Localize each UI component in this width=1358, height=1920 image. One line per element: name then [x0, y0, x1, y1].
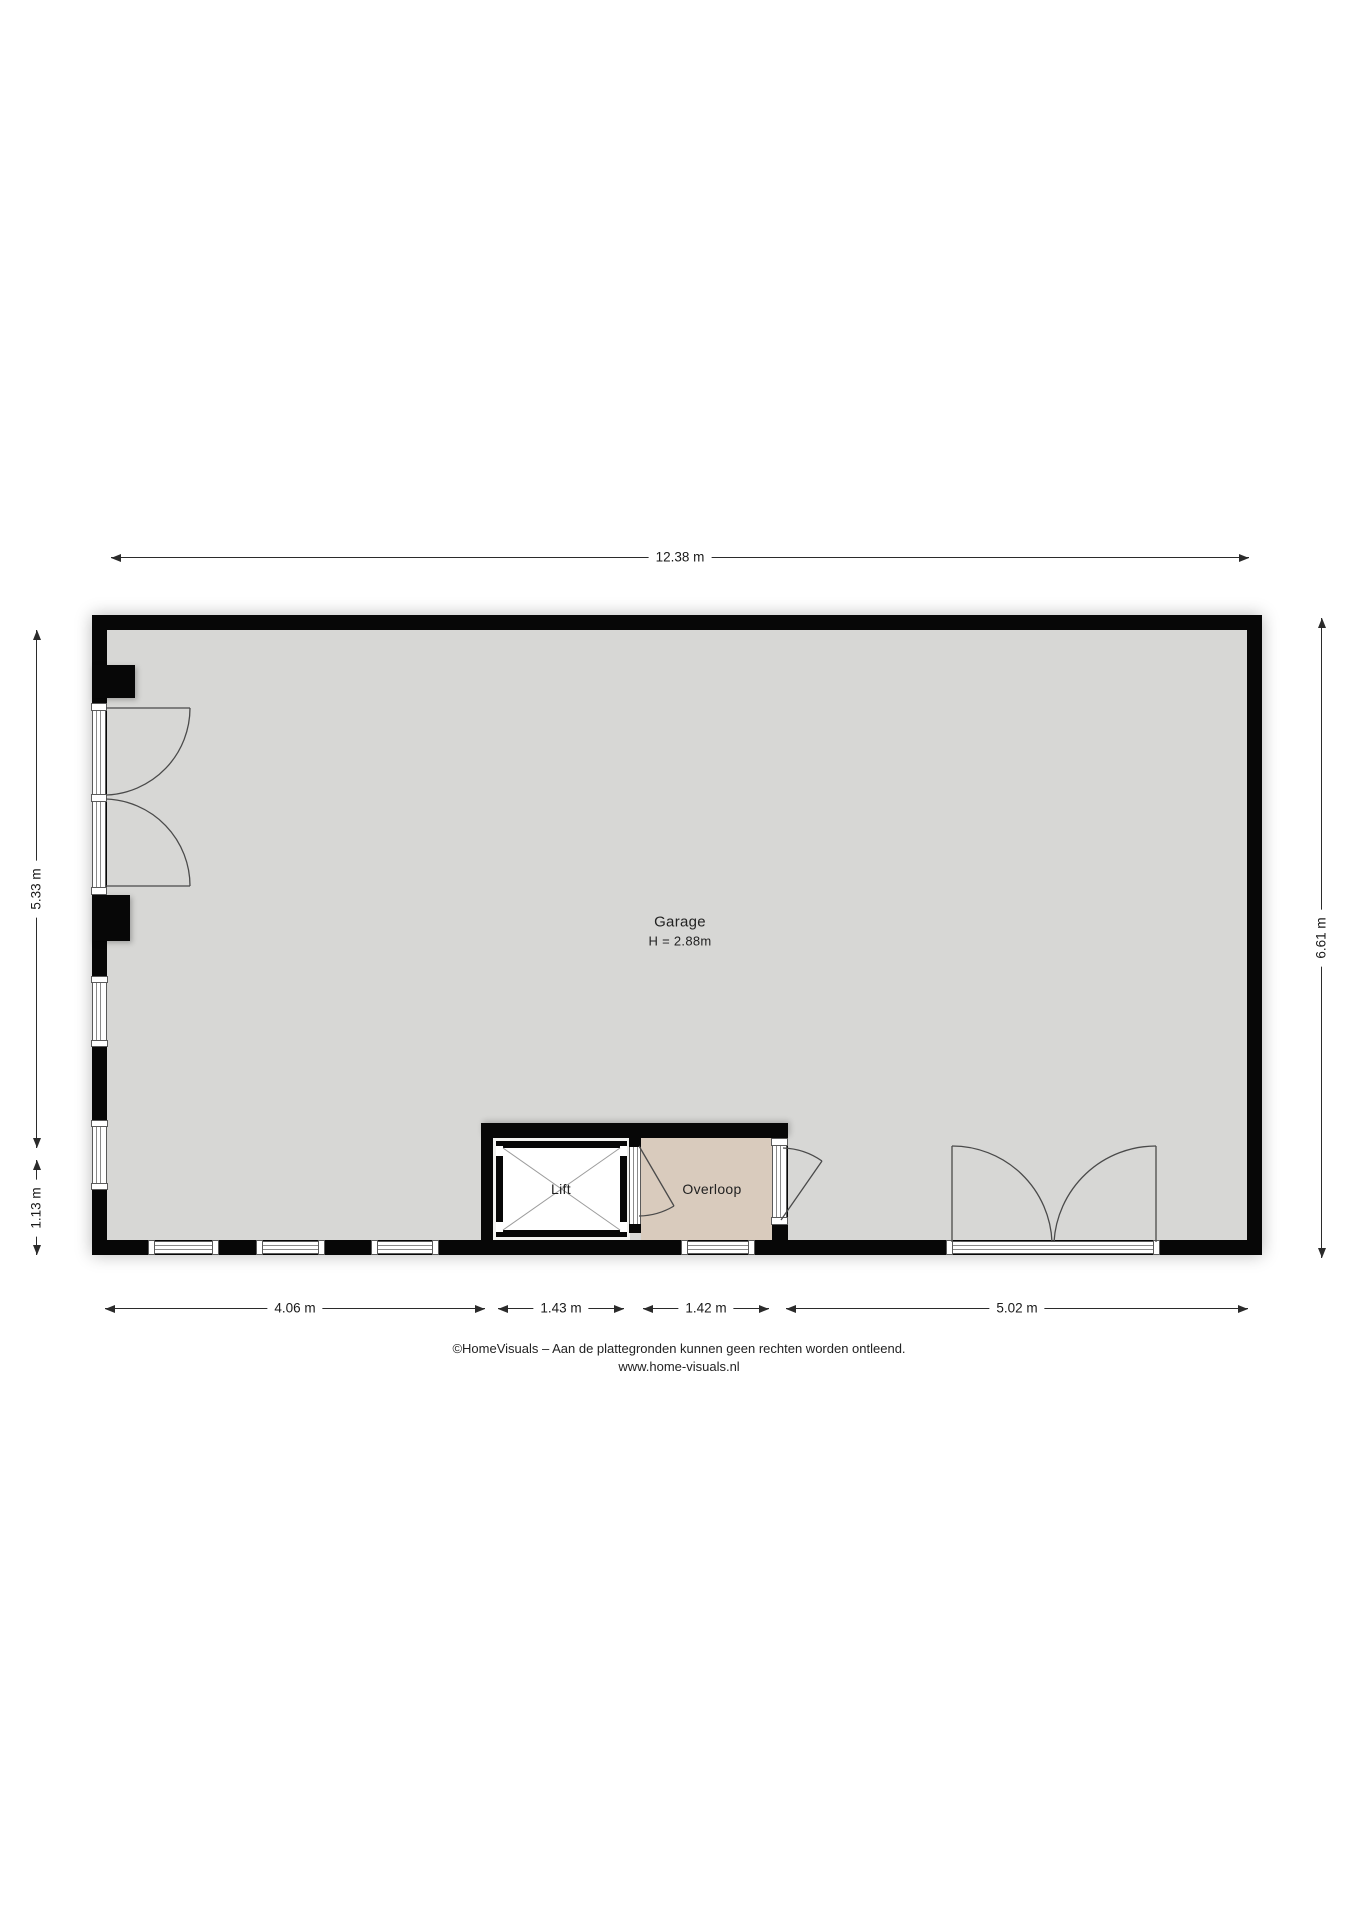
lift-door-cap [629, 1138, 641, 1147]
window-cap [318, 1240, 325, 1255]
arrow-right-icon [1238, 1305, 1248, 1313]
lift-frame-notch [496, 1146, 503, 1156]
dimension-label: 12.38 m [649, 550, 712, 565]
window-cap [681, 1240, 688, 1255]
overloop-door-frame [772, 1140, 787, 1223]
window-cap [91, 976, 108, 983]
arrow-left-icon [498, 1305, 508, 1313]
window [258, 1241, 323, 1254]
lift-door-frame [629, 1138, 641, 1233]
window-cap [371, 1240, 378, 1255]
pillar [92, 665, 135, 698]
dimension-top: 12.38 m [111, 551, 1249, 564]
dimension-label: 1.42 m [678, 1301, 733, 1316]
arrow-up-icon [33, 630, 41, 640]
lift-frame-notch [620, 1222, 627, 1232]
dimension-bottom-3: 1.42 m [643, 1302, 769, 1315]
window-cap [91, 1183, 108, 1190]
dimension-label: 6.61 m [1314, 909, 1329, 966]
dimension-bottom-2: 1.43 m [498, 1302, 624, 1315]
overloop-label: Overloop [682, 1181, 741, 1197]
window-cap [748, 1240, 755, 1255]
arrow-left-icon [111, 554, 121, 562]
dimension-label: 1.43 m [533, 1301, 588, 1316]
arrow-down-icon [1318, 1248, 1326, 1258]
window-cap [91, 1040, 108, 1047]
dimension-label: 5.33 m [29, 860, 44, 917]
arrow-right-icon [614, 1305, 624, 1313]
wall-top [92, 615, 1262, 630]
garage-height-label: H = 2.88m [648, 934, 711, 949]
arrow-down-icon [33, 1138, 41, 1148]
arrow-left-icon [105, 1305, 115, 1313]
lift-frame-notch [496, 1222, 503, 1232]
wall-right [1247, 615, 1262, 1255]
door-frame-cap [91, 794, 107, 802]
door-frame-cap [91, 703, 107, 711]
core-wall-top [481, 1123, 788, 1138]
window [373, 1241, 437, 1254]
dimension-bottom-4: 5.02 m [786, 1302, 1248, 1315]
arrow-up-icon [33, 1160, 41, 1170]
arrow-left-icon [786, 1305, 796, 1313]
dimension-label: 1.13 m [29, 1179, 44, 1236]
dimension-right: 6.61 m [1315, 618, 1328, 1258]
dimension-left-lower: 1.13 m [30, 1160, 43, 1255]
window [92, 978, 107, 1045]
window [92, 1122, 107, 1188]
door-frame-cap [946, 1240, 953, 1255]
door-frame-left-double [92, 705, 106, 891]
dimension-bottom-1: 4.06 m [105, 1302, 485, 1315]
door-threshold [948, 1241, 1158, 1254]
door-frame-cap [771, 1138, 788, 1146]
dimension-left-upper: 5.33 m [30, 630, 43, 1148]
core-wall-left [481, 1123, 493, 1255]
door-frame-cap [771, 1217, 788, 1225]
arrow-up-icon [1318, 618, 1326, 628]
window-cap [91, 1120, 108, 1127]
arrow-right-icon [1239, 554, 1249, 562]
window-cap [256, 1240, 263, 1255]
window-cap [212, 1240, 219, 1255]
window [683, 1241, 753, 1254]
arrow-right-icon [759, 1305, 769, 1313]
dimension-label: 4.06 m [267, 1301, 322, 1316]
lift-frame-notch [620, 1146, 627, 1156]
lift-door-cap [629, 1224, 641, 1233]
arrow-right-icon [475, 1305, 485, 1313]
dimension-label: 5.02 m [989, 1301, 1044, 1316]
window-cap [432, 1240, 439, 1255]
footer: ©HomeVisuals – Aan de plattegronden kunn… [0, 1340, 1358, 1375]
lift-label: Lift [551, 1181, 571, 1197]
arrow-left-icon [643, 1305, 653, 1313]
website-text: www.home-visuals.nl [0, 1358, 1358, 1376]
door-frame-cap [91, 887, 107, 895]
pillar [92, 895, 130, 941]
garage-label: Garage [654, 914, 706, 931]
floorplan-page: 12.38 m 5.33 m 1.13 m 6.61 m [0, 0, 1358, 1920]
door-frame-cap [1153, 1240, 1160, 1255]
window-cap [148, 1240, 155, 1255]
window [150, 1241, 217, 1254]
arrow-down-icon [33, 1245, 41, 1255]
copyright-text: ©HomeVisuals – Aan de plattegronden kunn… [0, 1340, 1358, 1358]
